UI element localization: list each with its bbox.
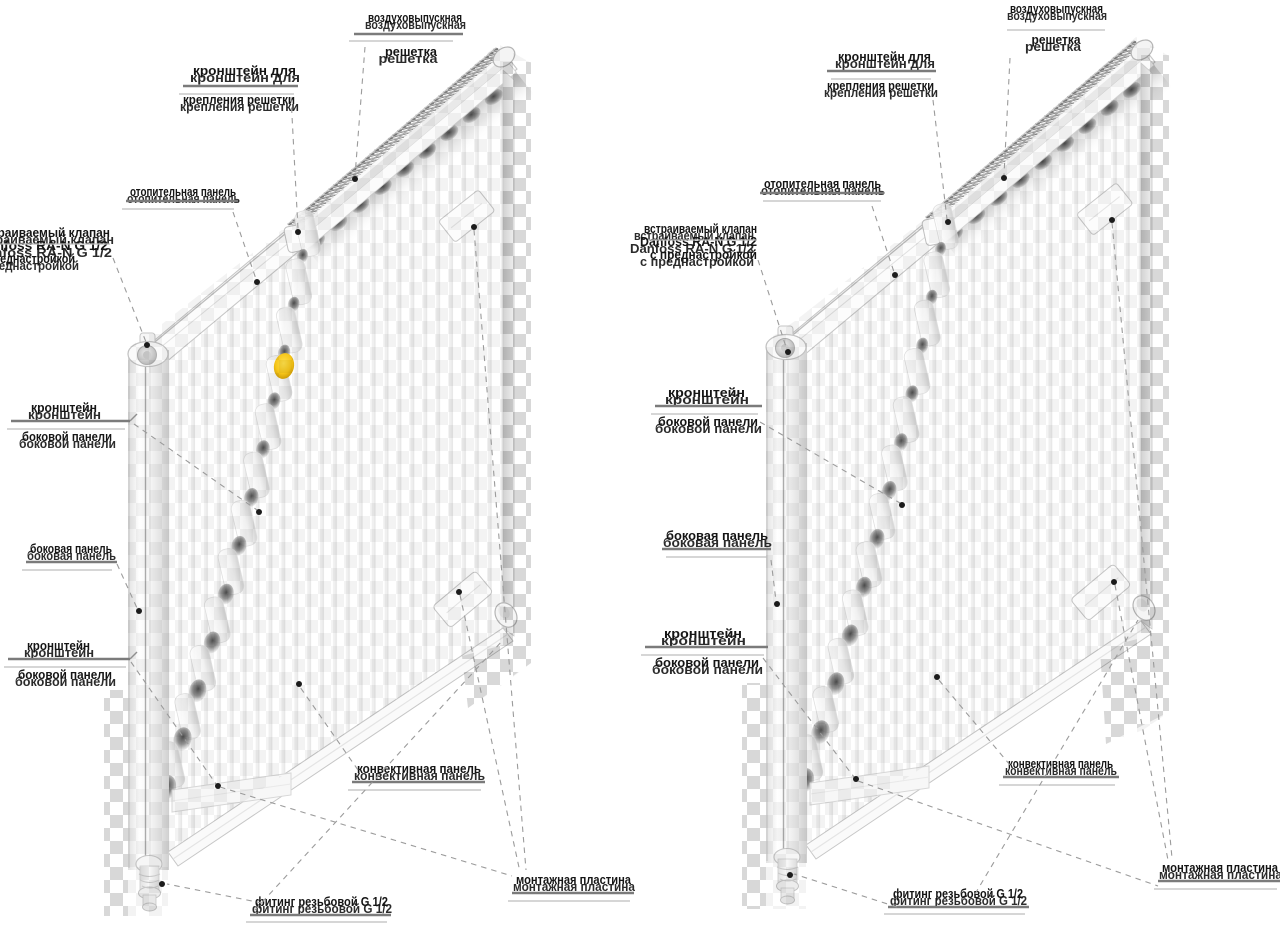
svg-text:решетка: решетка: [379, 51, 439, 66]
svg-text:воздуховыпускная: воздуховыпускная: [1007, 8, 1107, 23]
svg-text:воздуховыпускная: воздуховыпускная: [365, 17, 466, 32]
svg-text:крепления решетки: крепления решетки: [180, 99, 299, 114]
svg-text:кронштейн для: кронштейн для: [835, 56, 935, 71]
svg-text:отопительная панель: отопительная панель: [761, 183, 885, 198]
svg-text:с преднастройкой: с преднастройкой: [0, 258, 79, 273]
svg-text:боковой панели: боковой панели: [15, 674, 116, 689]
svg-text:кронштейн для: кронштейн для: [190, 70, 300, 85]
svg-text:боковой панели: боковой панели: [652, 662, 763, 677]
svg-text:отопительная панель: отопительная панель: [127, 191, 240, 206]
svg-text:боковой панели: боковой панели: [19, 436, 116, 451]
svg-text:решетка: решетка: [1025, 39, 1082, 54]
svg-text:с преднастройкой: с преднастройкой: [640, 254, 754, 269]
svg-text:крепления решетки: крепления решетки: [824, 85, 938, 100]
svg-text:боковой панели: боковой панели: [655, 421, 762, 436]
